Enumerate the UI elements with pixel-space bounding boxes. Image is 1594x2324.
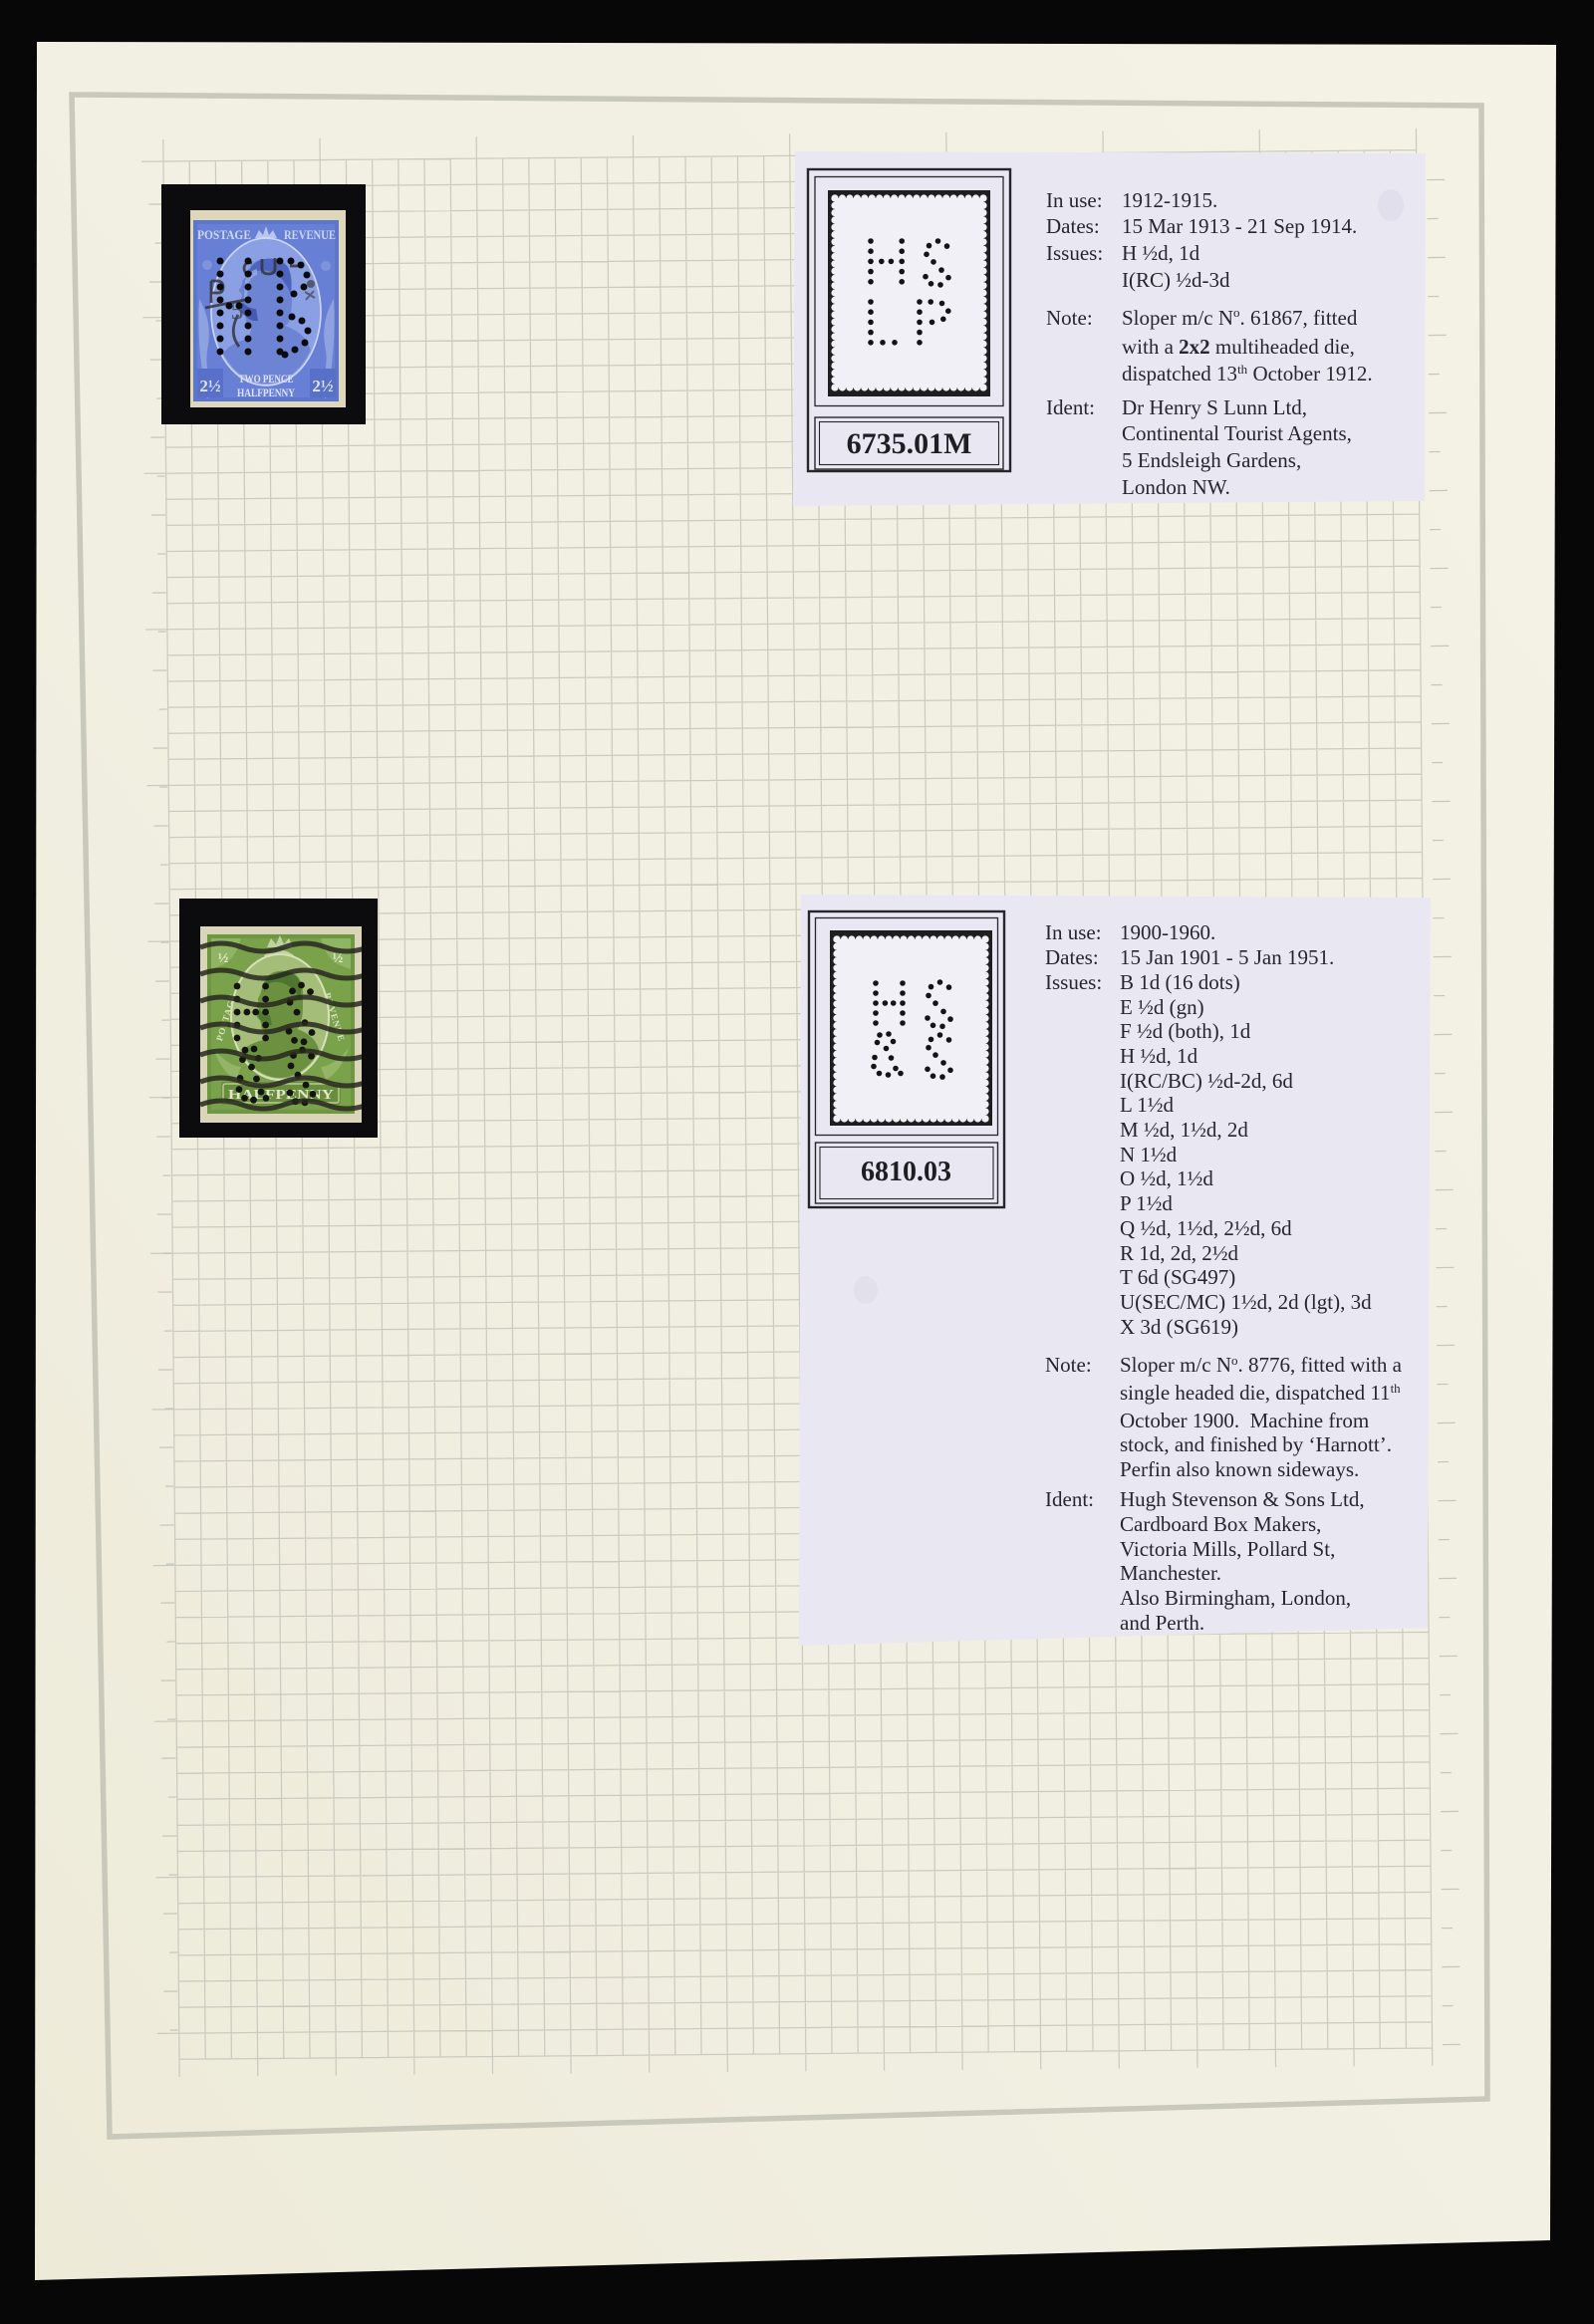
svg-text:2½: 2½ [199, 377, 221, 395]
svg-text:POSTAGE: POSTAGE [197, 227, 251, 242]
svg-text:REVENUE: REVENUE [284, 227, 336, 242]
svg-text:½: ½ [218, 951, 229, 966]
svg-text:5: 5 [231, 296, 244, 325]
svg-text:2½: 2½ [312, 377, 334, 395]
svg-text:HALFPENNY: HALFPENNY [237, 386, 295, 399]
svg-text:TWO PENCE: TWO PENCE [239, 372, 294, 386]
